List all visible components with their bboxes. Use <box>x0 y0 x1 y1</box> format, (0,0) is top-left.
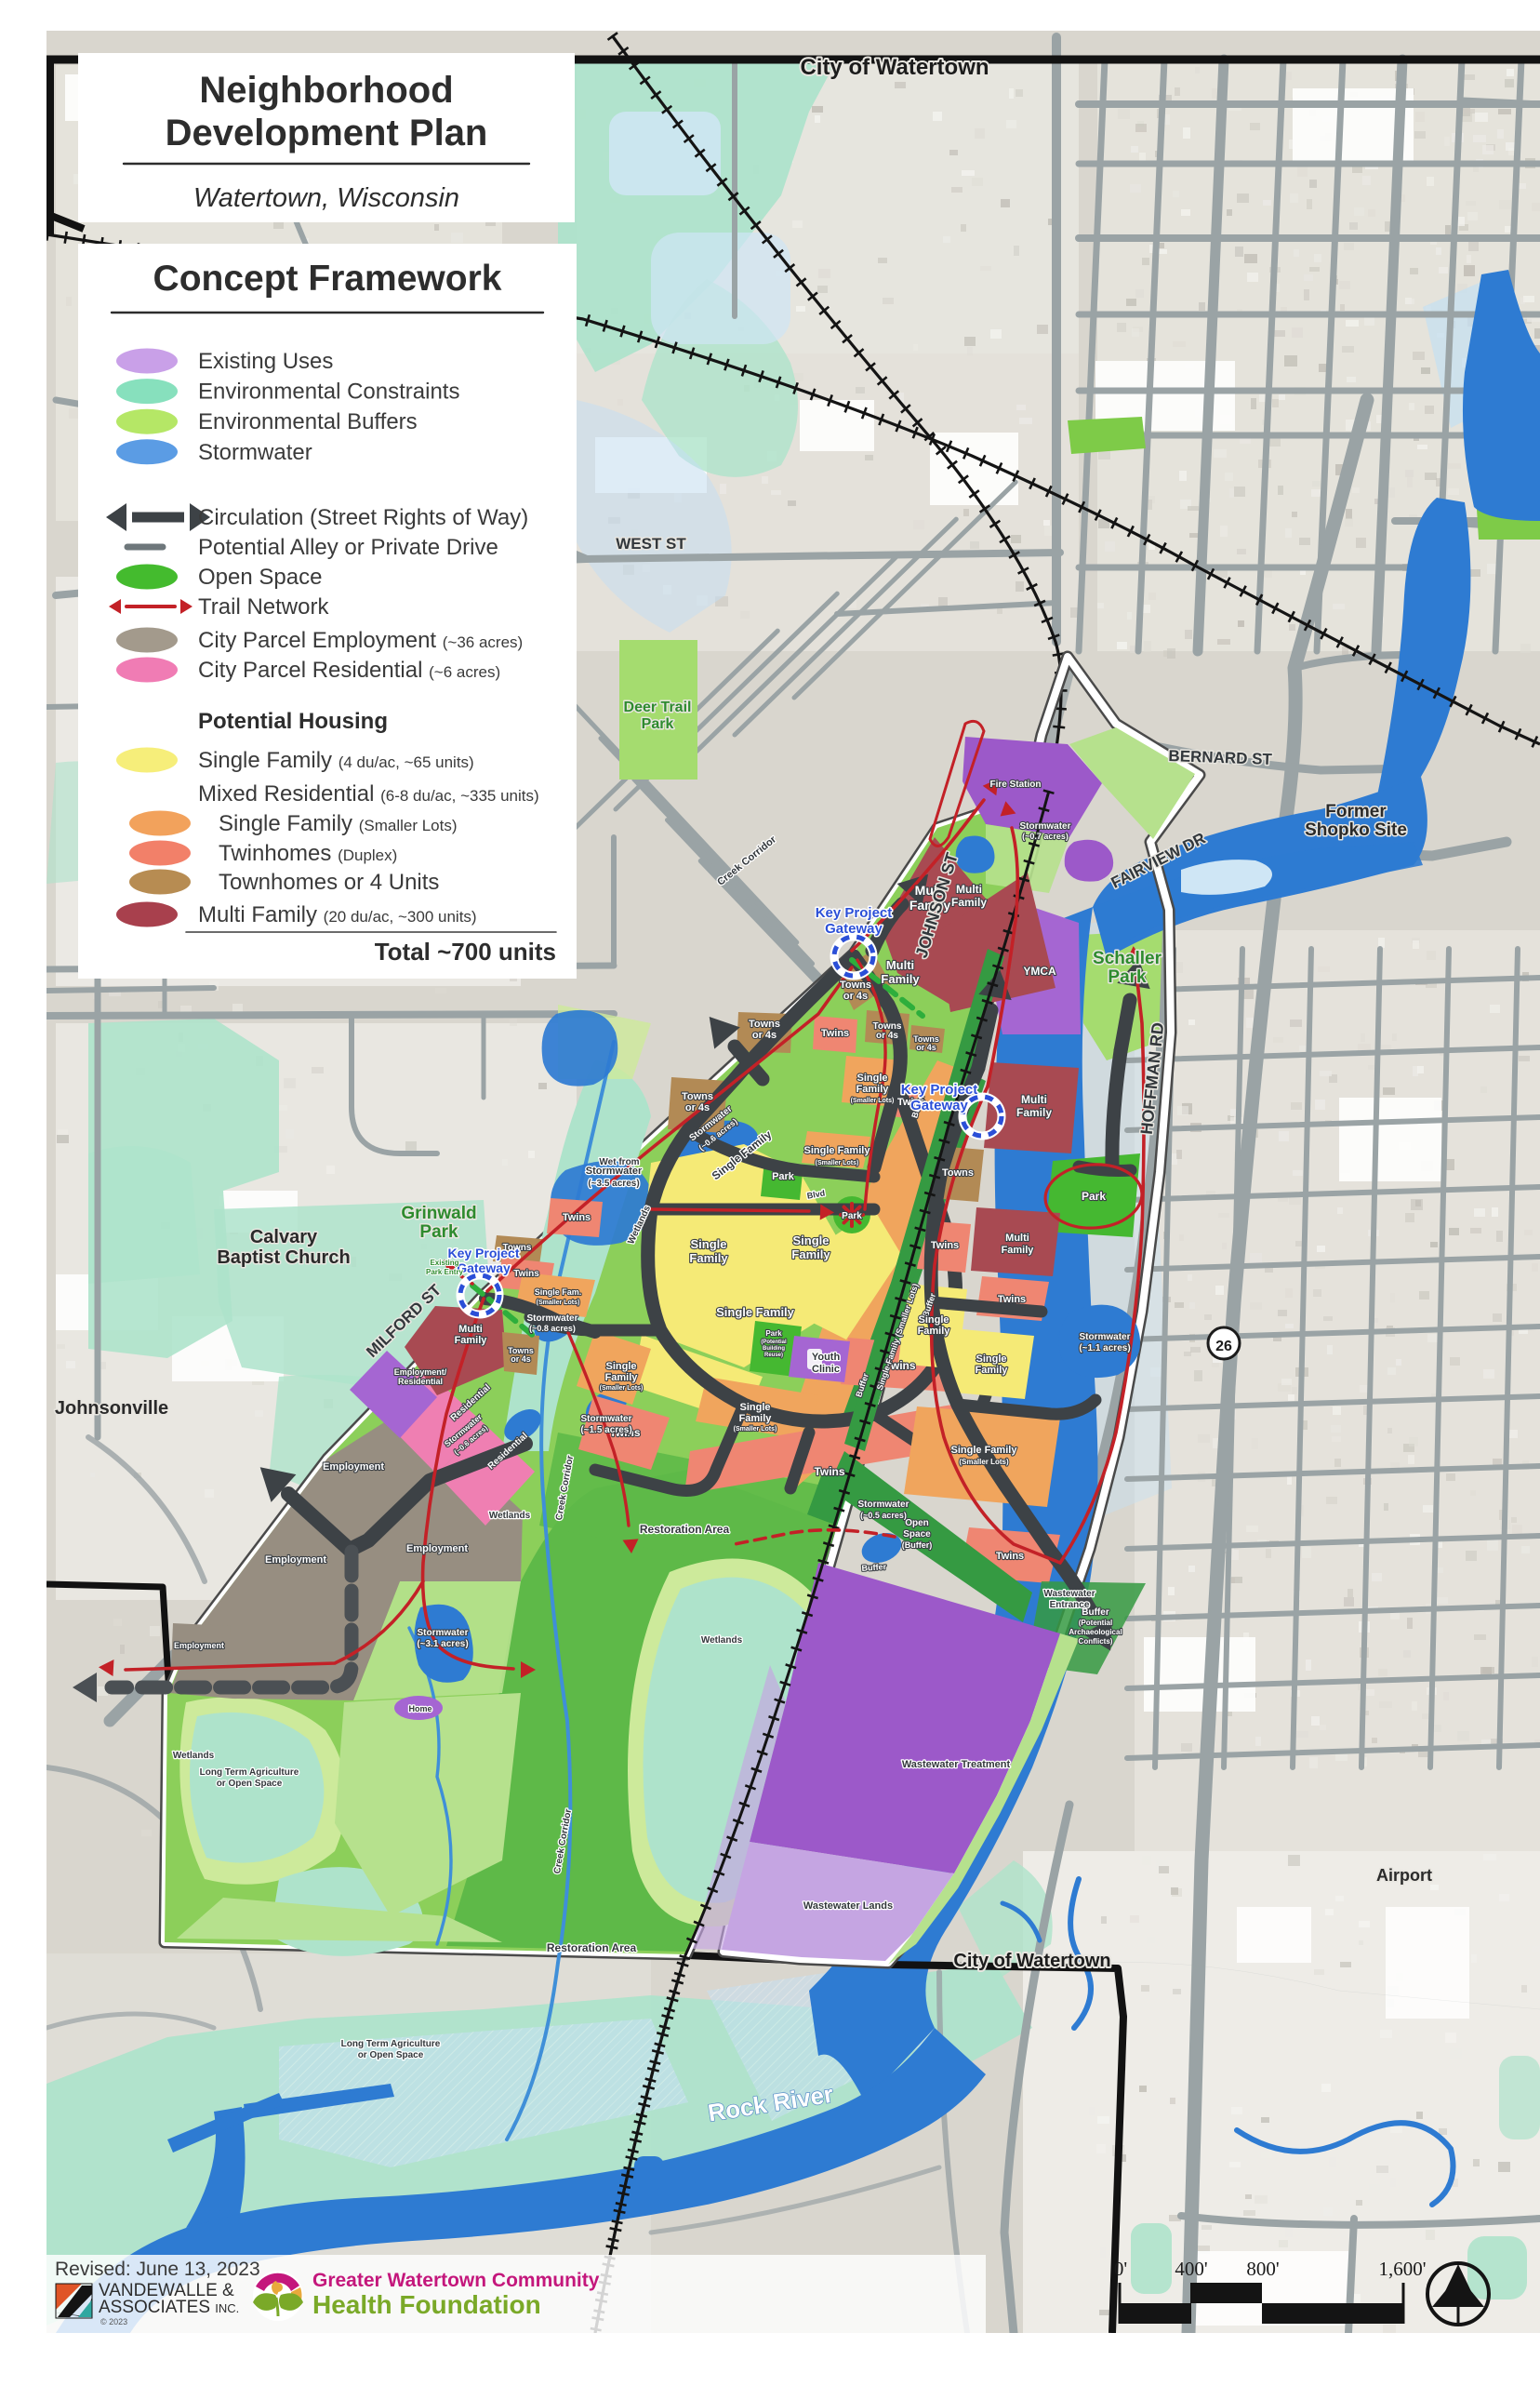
svg-text:(Smaller Lots): (Smaller Lots) <box>734 1426 777 1433</box>
svg-text:Buffer: Buffer <box>861 1562 887 1573</box>
svg-text:Single Fam.: Single Fam. <box>535 1287 582 1297</box>
svg-text:Employment: Employment <box>265 1554 326 1566</box>
svg-text:Baptist Church: Baptist Church <box>217 1247 350 1268</box>
svg-text:Restoration Area: Restoration Area <box>547 1941 637 1954</box>
svg-text:400': 400' <box>1175 2258 1207 2280</box>
svg-text:Building: Building <box>763 1346 785 1352</box>
svg-text:Single: Single <box>605 1361 636 1372</box>
svg-text:Stormwater: Stormwater <box>417 1628 468 1638</box>
svg-text:Youth: Youth <box>812 1352 841 1363</box>
svg-text:Park: Park <box>642 716 674 732</box>
svg-text:Stormwater: Stormwater <box>1079 1332 1130 1342</box>
svg-text:Employment: Employment <box>174 1641 224 1650</box>
svg-text:Schaller: Schaller <box>1093 949 1162 968</box>
svg-text:City of Watertown: City of Watertown <box>800 55 989 80</box>
svg-text:Stormwater: Stormwater <box>580 1414 631 1424</box>
svg-text:Revised: June 13, 2023: Revised: June 13, 2023 <box>55 2259 260 2280</box>
svg-text:Open: Open <box>905 1518 929 1528</box>
svg-text:(~0.5 acres): (~0.5 acres) <box>860 1511 907 1520</box>
svg-text:Health Foundation: Health Foundation <box>312 2290 541 2319</box>
svg-text:Employment/: Employment/ <box>394 1367 447 1377</box>
svg-text:or Open Space: or Open Space <box>358 2050 424 2060</box>
svg-text:Grinwald: Grinwald <box>401 1204 476 1223</box>
svg-text:Family: Family <box>689 1251 728 1265</box>
svg-text:Towns: Towns <box>840 980 871 991</box>
svg-text:Family: Family <box>739 1413 773 1424</box>
svg-text:(Smaller Lots): (Smaller Lots) <box>600 1385 644 1392</box>
svg-text:© 2023: © 2023 <box>100 2317 127 2326</box>
svg-text:Family: Family <box>1016 1106 1052 1119</box>
svg-text:(~1.5 acres): (~1.5 acres) <box>580 1425 631 1435</box>
svg-text:Multi: Multi <box>1021 1093 1047 1106</box>
svg-text:Total ~700 units: Total ~700 units <box>375 938 556 966</box>
svg-text:YMCA: YMCA <box>1023 965 1056 978</box>
svg-text:26: 26 <box>1215 1339 1232 1354</box>
svg-text:Single Family: Single Family <box>804 1145 871 1156</box>
svg-text:Wetlands: Wetlands <box>173 1751 215 1761</box>
svg-text:Single: Single <box>856 1073 887 1084</box>
svg-text:Trail Network: Trail Network <box>198 594 329 620</box>
svg-text:Multi: Multi <box>1005 1233 1029 1244</box>
svg-text:Twins: Twins <box>513 1269 539 1279</box>
svg-text:(Smaller Lots): (Smaller Lots) <box>537 1300 580 1306</box>
svg-text:Single: Single <box>918 1314 949 1326</box>
svg-text:WEST ST: WEST ST <box>616 535 686 553</box>
svg-text:Single Family: Single Family <box>716 1305 795 1319</box>
svg-text:Twins: Twins <box>996 1551 1024 1562</box>
svg-text:Family: Family <box>918 1326 951 1337</box>
svg-text:(~1.1 acres): (~1.1 acres) <box>1079 1343 1130 1353</box>
svg-text:Concept Framework: Concept Framework <box>153 259 502 299</box>
svg-text:Multi: Multi <box>886 958 914 972</box>
svg-text:Twins: Twins <box>814 1465 844 1478</box>
svg-text:Calvary: Calvary <box>250 1227 318 1247</box>
svg-text:Towns: Towns <box>749 1019 780 1030</box>
svg-text:Restoration Area: Restoration Area <box>640 1523 730 1536</box>
svg-text:BERNARD ST: BERNARD ST <box>1168 747 1273 768</box>
svg-text:Gateway: Gateway <box>910 1098 968 1113</box>
svg-text:Park: Park <box>419 1222 458 1242</box>
svg-text:Potential Alley or Private Dri: Potential Alley or Private Drive <box>198 535 498 560</box>
svg-text:Park: Park <box>1108 967 1147 987</box>
svg-text:Twins: Twins <box>931 1240 959 1251</box>
svg-text:or 4s: or 4s <box>876 1031 898 1041</box>
svg-text:or 4s: or 4s <box>843 991 868 1002</box>
svg-text:Single: Single <box>792 1233 829 1247</box>
svg-text:(Potential: (Potential <box>761 1340 787 1345</box>
svg-text:Environmental Constraints: Environmental Constraints <box>198 380 459 405</box>
svg-text:Former: Former <box>1325 802 1387 821</box>
svg-text:(~3.1 acres): (~3.1 acres) <box>417 1639 468 1649</box>
svg-text:Gateway: Gateway <box>825 921 883 937</box>
svg-text:0': 0' <box>1114 2258 1127 2280</box>
svg-text:(~0.7 acres): (~0.7 acres) <box>1022 832 1069 841</box>
svg-text:Home: Home <box>408 1704 431 1713</box>
svg-text:Twins: Twins <box>821 1028 849 1039</box>
svg-text:ASSOCIATES INC.: ASSOCIATES INC. <box>99 2298 239 2317</box>
svg-text:(Smaller Lots): (Smaller Lots) <box>851 1098 895 1104</box>
svg-text:Park Entry: Park Entry <box>426 1268 464 1276</box>
svg-text:or 4s: or 4s <box>685 1102 710 1113</box>
svg-text:Johnsonville: Johnsonville <box>55 1398 168 1419</box>
svg-text:Multi: Multi <box>458 1324 483 1335</box>
svg-text:Residential: Residential <box>398 1377 443 1386</box>
svg-text:Stormwater: Stormwater <box>857 1500 909 1510</box>
svg-text:(Smaller Lots): (Smaller Lots) <box>959 1458 1009 1466</box>
svg-text:Family: Family <box>791 1247 830 1261</box>
svg-text:Entrance: Entrance <box>1050 1600 1090 1610</box>
svg-text:Townhomes or 4 Units: Townhomes or 4 Units <box>219 870 439 895</box>
svg-text:Family: Family <box>951 896 987 909</box>
svg-text:or 4s: or 4s <box>511 1354 531 1364</box>
svg-text:City of Watertown: City of Watertown <box>953 1951 1110 1971</box>
svg-text:Existing Uses: Existing Uses <box>198 349 333 374</box>
svg-text:Park: Park <box>842 1211 862 1221</box>
svg-text:Space: Space <box>903 1529 931 1540</box>
svg-text:Single: Single <box>690 1237 726 1251</box>
svg-text:Wet from: Wet from <box>599 1157 639 1167</box>
svg-text:(~3.5 acres): (~3.5 acres) <box>588 1179 639 1189</box>
svg-text:Park: Park <box>765 1329 782 1338</box>
svg-text:Twins: Twins <box>563 1212 591 1223</box>
svg-text:or 4s: or 4s <box>916 1043 936 1052</box>
svg-text:Reuse): Reuse) <box>764 1353 783 1358</box>
svg-text:Wastewater: Wastewater <box>1043 1589 1095 1599</box>
svg-text:Single: Single <box>739 1402 770 1413</box>
svg-text:Park: Park <box>1082 1190 1106 1203</box>
svg-text:Towns: Towns <box>682 1091 713 1102</box>
svg-text:Circulation (Street Rights of: Circulation (Street Rights of Way) <box>198 505 528 530</box>
svg-text:Neighborhood: Neighborhood <box>199 70 453 111</box>
svg-text:Single Family: Single Family <box>951 1445 1018 1456</box>
svg-text:(Buffer): (Buffer) <box>902 1540 933 1550</box>
svg-text:Employment: Employment <box>406 1543 468 1554</box>
svg-text:Family: Family <box>1002 1245 1035 1256</box>
svg-text:Long Term Agriculture: Long Term Agriculture <box>341 2039 441 2049</box>
svg-text:Family: Family <box>976 1365 1009 1376</box>
svg-text:Stormwater: Stormwater <box>526 1313 577 1324</box>
svg-text:Single: Single <box>976 1353 1006 1365</box>
svg-text:Stormwater: Stormwater <box>198 440 312 465</box>
svg-text:Wastewater Lands: Wastewater Lands <box>803 1900 893 1912</box>
svg-text:Potential Housing: Potential Housing <box>198 709 388 734</box>
svg-text:or 4s: or 4s <box>752 1030 777 1041</box>
svg-text:Key Project: Key Project <box>901 1082 978 1098</box>
svg-text:Stormwater: Stormwater <box>1019 821 1070 832</box>
svg-text:Watertown, Wisconsin: Watertown, Wisconsin <box>193 183 459 213</box>
svg-text:Family: Family <box>881 972 920 986</box>
svg-text:Family: Family <box>455 1335 488 1346</box>
svg-text:Twins: Twins <box>998 1294 1026 1305</box>
svg-text:Wastewater Treatment: Wastewater Treatment <box>902 1759 1011 1770</box>
svg-text:(Smaller Lots): (Smaller Lots) <box>816 1160 859 1166</box>
svg-text:Family: Family <box>856 1084 890 1095</box>
svg-text:Open Space: Open Space <box>198 565 322 590</box>
svg-text:Long Term Agriculture: Long Term Agriculture <box>200 1767 299 1778</box>
svg-text:(~0.8 acres): (~0.8 acres) <box>529 1324 576 1333</box>
svg-text:(Potential: (Potential <box>1079 1619 1112 1627</box>
svg-text:Development Plan: Development Plan <box>166 113 488 153</box>
svg-text:Deer Trail: Deer Trail <box>624 700 692 715</box>
svg-text:800': 800' <box>1246 2258 1279 2280</box>
svg-text:Clinic: Clinic <box>812 1364 840 1375</box>
svg-text:Family: Family <box>605 1372 639 1383</box>
svg-text:1,600': 1,600' <box>1378 2258 1426 2280</box>
svg-text:Greater Watertown Community: Greater Watertown Community <box>312 2270 600 2291</box>
svg-text:Conflicts): Conflicts) <box>1079 1637 1113 1646</box>
svg-text:Shopko Site: Shopko Site <box>1305 820 1407 840</box>
svg-text:Gateway: Gateway <box>457 1260 511 1275</box>
svg-text:Multi: Multi <box>956 883 982 896</box>
svg-text:Archaeological: Archaeological <box>1069 1628 1122 1636</box>
svg-text:Key Project: Key Project <box>816 905 893 921</box>
svg-text:Airport: Airport <box>1376 1866 1432 1885</box>
svg-text:Wetlands: Wetlands <box>489 1511 531 1521</box>
svg-text:or Open Space: or Open Space <box>217 1779 283 1789</box>
svg-text:Environmental Buffers: Environmental Buffers <box>198 409 418 434</box>
svg-text:Existing: Existing <box>430 1259 458 1267</box>
svg-text:Fire Station: Fire Station <box>989 780 1041 790</box>
svg-text:Park: Park <box>772 1171 795 1182</box>
svg-text:Employment: Employment <box>323 1461 384 1473</box>
svg-text:Wetlands: Wetlands <box>701 1635 743 1646</box>
svg-text:Towns: Towns <box>942 1167 974 1179</box>
